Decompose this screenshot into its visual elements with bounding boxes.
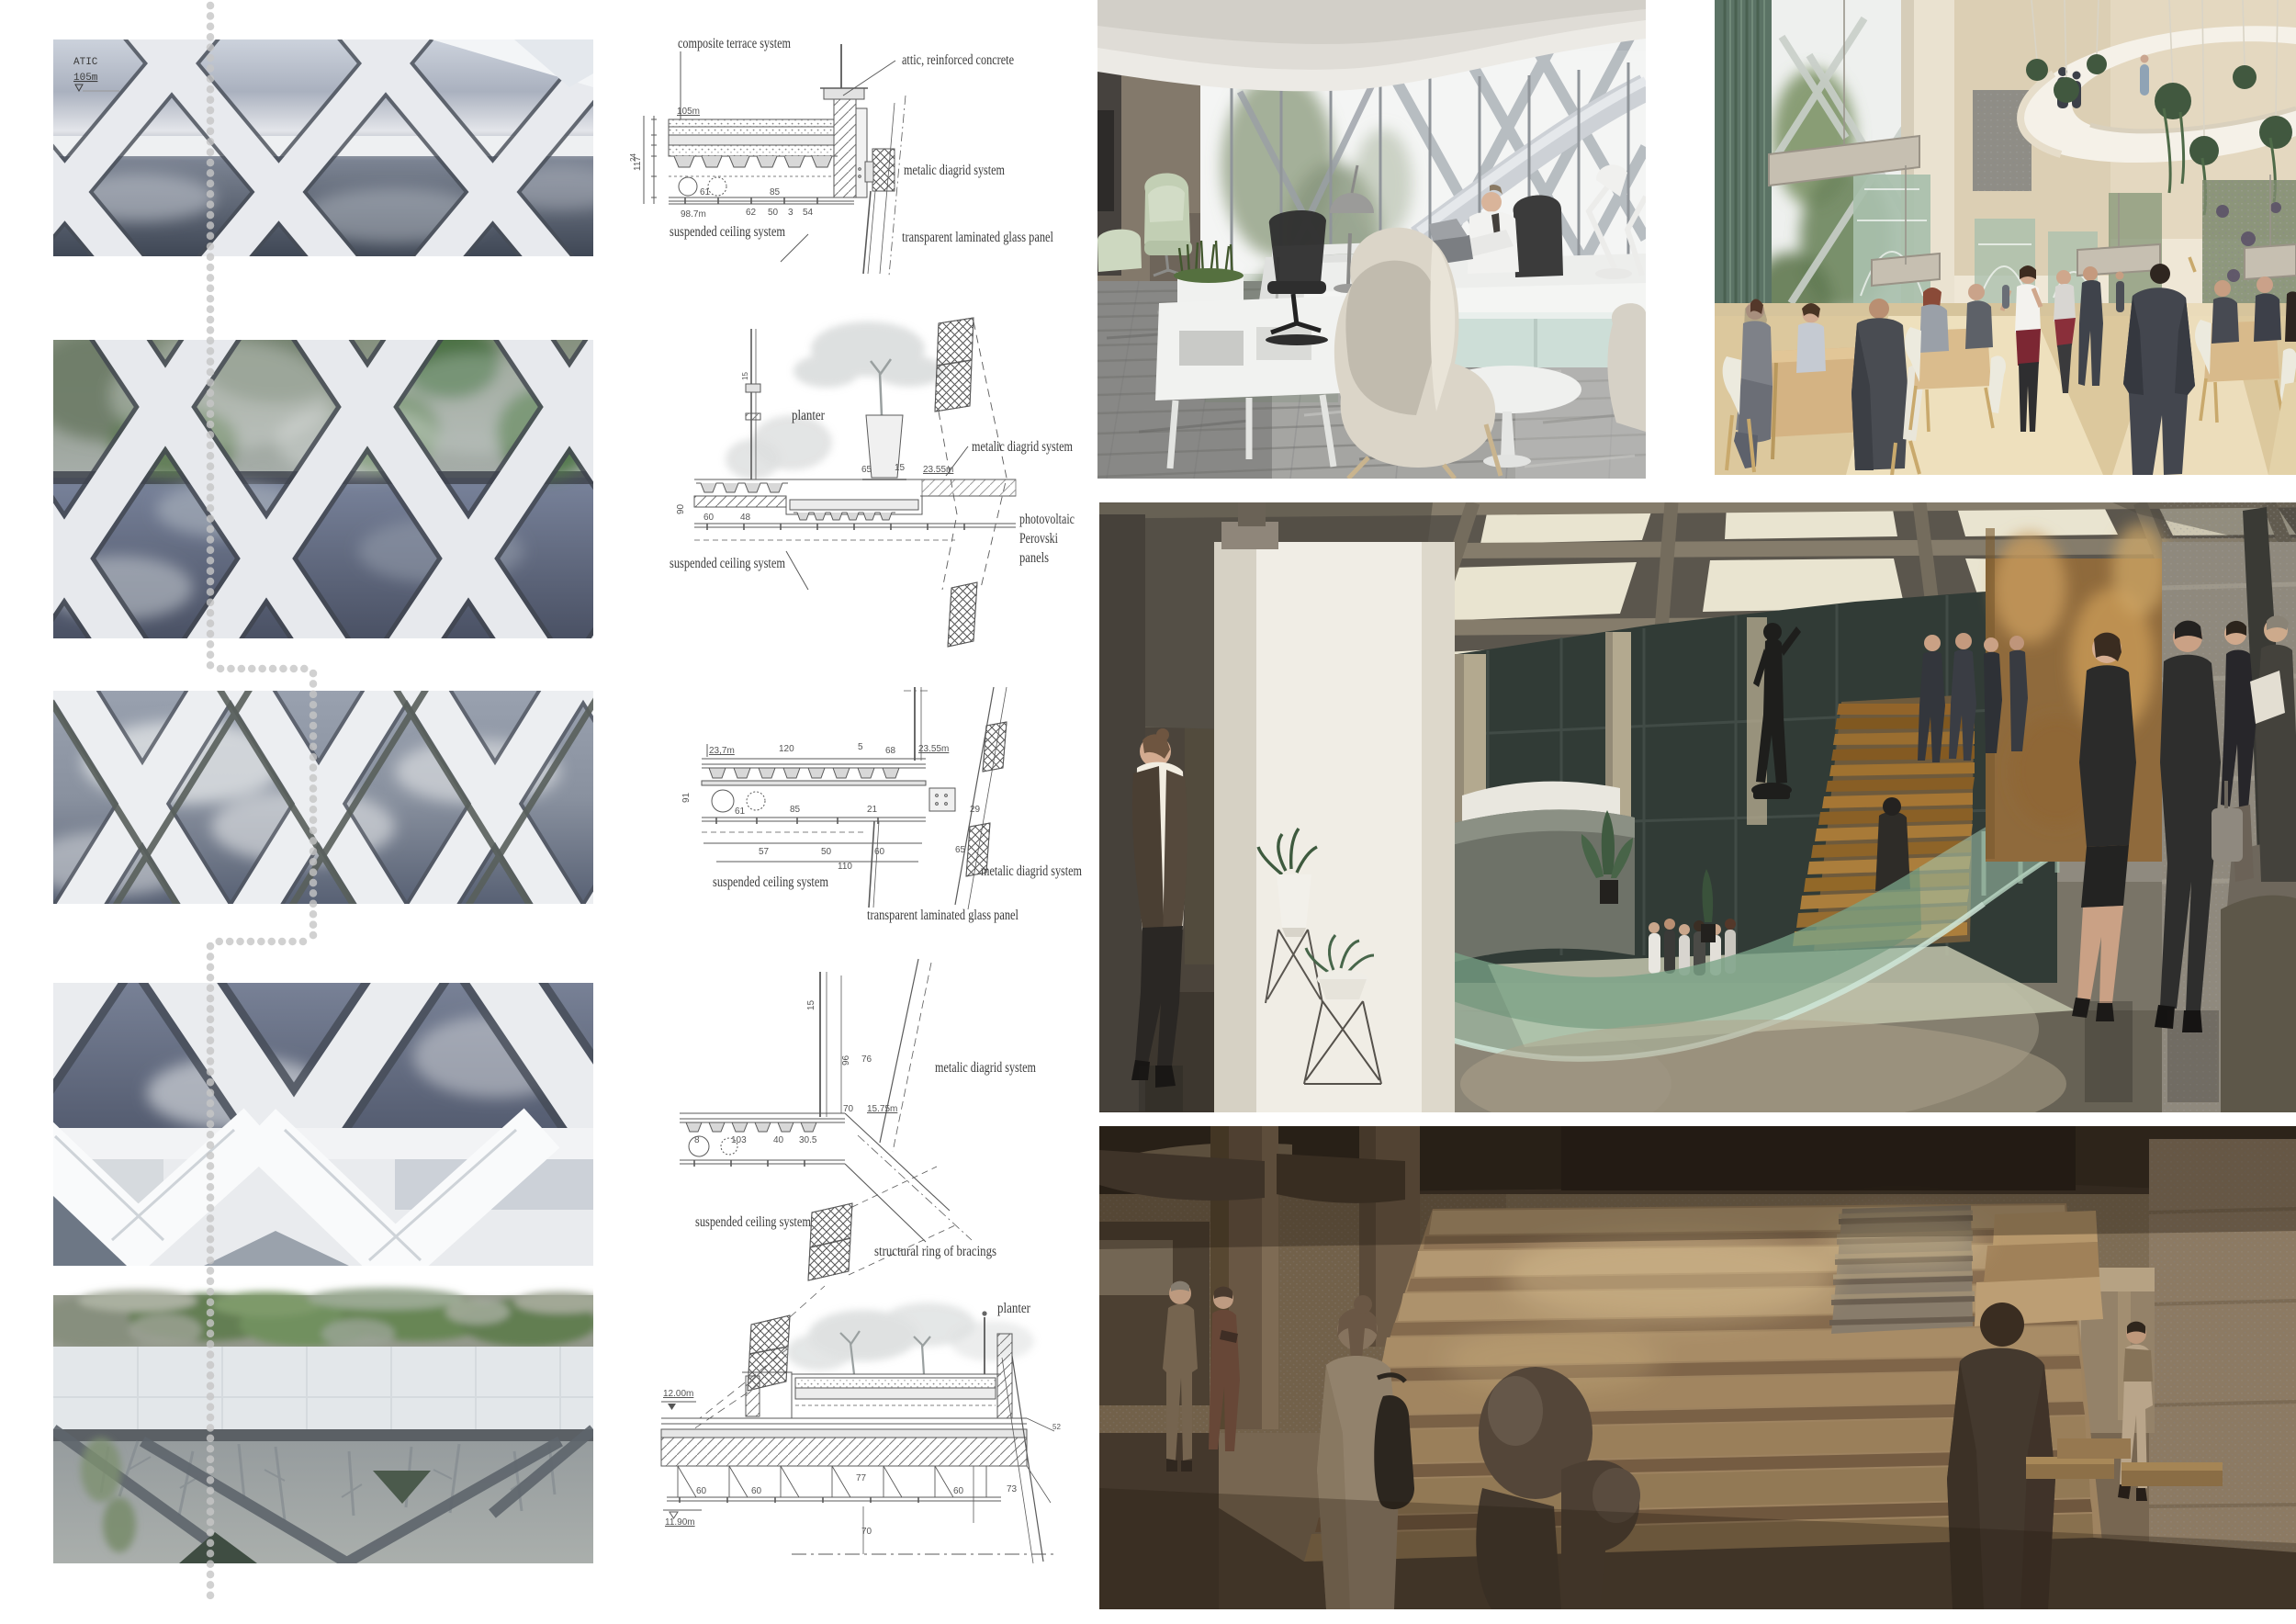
svg-text:23.55m: 23.55m [918,744,949,754]
svg-text:metalic diagrid system: metalic diagrid system [935,1060,1036,1076]
svg-text:panels: panels [1019,550,1049,566]
svg-text:suspended ceiling system: suspended ceiling system [713,874,828,890]
svg-text:60: 60 [874,847,885,857]
svg-text:70: 70 [861,1527,872,1537]
svg-text:103: 103 [731,1135,747,1145]
svg-text:metalic diagrid system: metalic diagrid system [981,863,1082,879]
svg-text:91: 91 [681,792,692,803]
svg-text:60: 60 [953,1486,964,1496]
svg-text:77: 77 [856,1473,867,1483]
svg-text:planter: planter [792,408,826,423]
svg-text:composite terrace system: composite terrace system [678,36,791,51]
svg-text:85: 85 [790,805,801,815]
svg-text:61: 61 [700,187,711,197]
svg-text:24: 24 [629,153,637,162]
svg-text:105m: 105m [73,73,98,84]
svg-text:30.5: 30.5 [799,1135,817,1145]
svg-text:Perovski: Perovski [1019,531,1058,547]
svg-text:suspended ceiling system: suspended ceiling system [670,224,785,240]
svg-text:15: 15 [741,372,749,380]
svg-text:suspended ceiling system: suspended ceiling system [670,556,785,571]
svg-text:15: 15 [806,999,816,1010]
svg-text:3: 3 [788,208,793,218]
svg-text:planter: planter [997,1301,1031,1316]
svg-text:structural ring of bracings: structural ring of bracings [874,1244,996,1259]
svg-text:57: 57 [759,847,770,857]
svg-text:62: 62 [746,208,757,218]
svg-text:8: 8 [694,1135,700,1145]
svg-text:ATIC: ATIC [73,57,98,68]
svg-text:50: 50 [821,847,832,857]
svg-text:85: 85 [770,187,781,197]
svg-text:attic, reinforced concrete: attic, reinforced concrete [902,52,1014,68]
svg-text:110: 110 [838,862,852,872]
svg-text:12.00m: 12.00m [663,1389,693,1399]
svg-text:21: 21 [867,805,878,815]
svg-text:metalic diagrid system: metalic diagrid system [972,439,1073,455]
svg-text:105m: 105m [677,107,700,117]
svg-text:23.55m: 23.55m [923,465,953,475]
svg-text:120: 120 [779,744,794,754]
svg-text:48: 48 [740,513,751,523]
svg-text:60: 60 [696,1486,707,1496]
svg-text:metalic diagrid system: metalic diagrid system [904,163,1005,178]
svg-text:73: 73 [1007,1484,1018,1494]
svg-text:50: 50 [768,208,779,218]
svg-text:15: 15 [895,463,906,473]
svg-text:90: 90 [676,503,686,514]
svg-text:70: 70 [843,1104,854,1114]
svg-text:60: 60 [703,513,715,523]
svg-text:15.75m: 15.75m [867,1104,897,1114]
svg-text:transparent laminated glass pa: transparent laminated glass panel [867,908,1019,923]
svg-text:96: 96 [841,1054,851,1066]
svg-text:photovoltaic: photovoltaic [1019,512,1075,527]
svg-text:29: 29 [970,805,981,815]
svg-text:60: 60 [751,1486,762,1496]
svg-text:61: 61 [735,806,746,817]
svg-text:76: 76 [861,1054,872,1065]
svg-text:52: 52 [1052,1423,1061,1431]
svg-text:5: 5 [858,742,863,752]
svg-text:68: 68 [885,746,896,756]
svg-text:98.7m: 98.7m [681,209,706,220]
svg-text:suspended ceiling system: suspended ceiling system [695,1214,811,1230]
svg-text:40: 40 [773,1135,784,1145]
svg-text:transparent laminated glass pa: transparent laminated glass panel [902,230,1053,245]
svg-text:65: 65 [861,465,872,475]
svg-text:11.90m: 11.90m [665,1517,695,1528]
svg-text:54: 54 [803,208,814,218]
svg-text:23,7m: 23,7m [709,746,735,756]
svg-text:65: 65 [955,845,966,855]
